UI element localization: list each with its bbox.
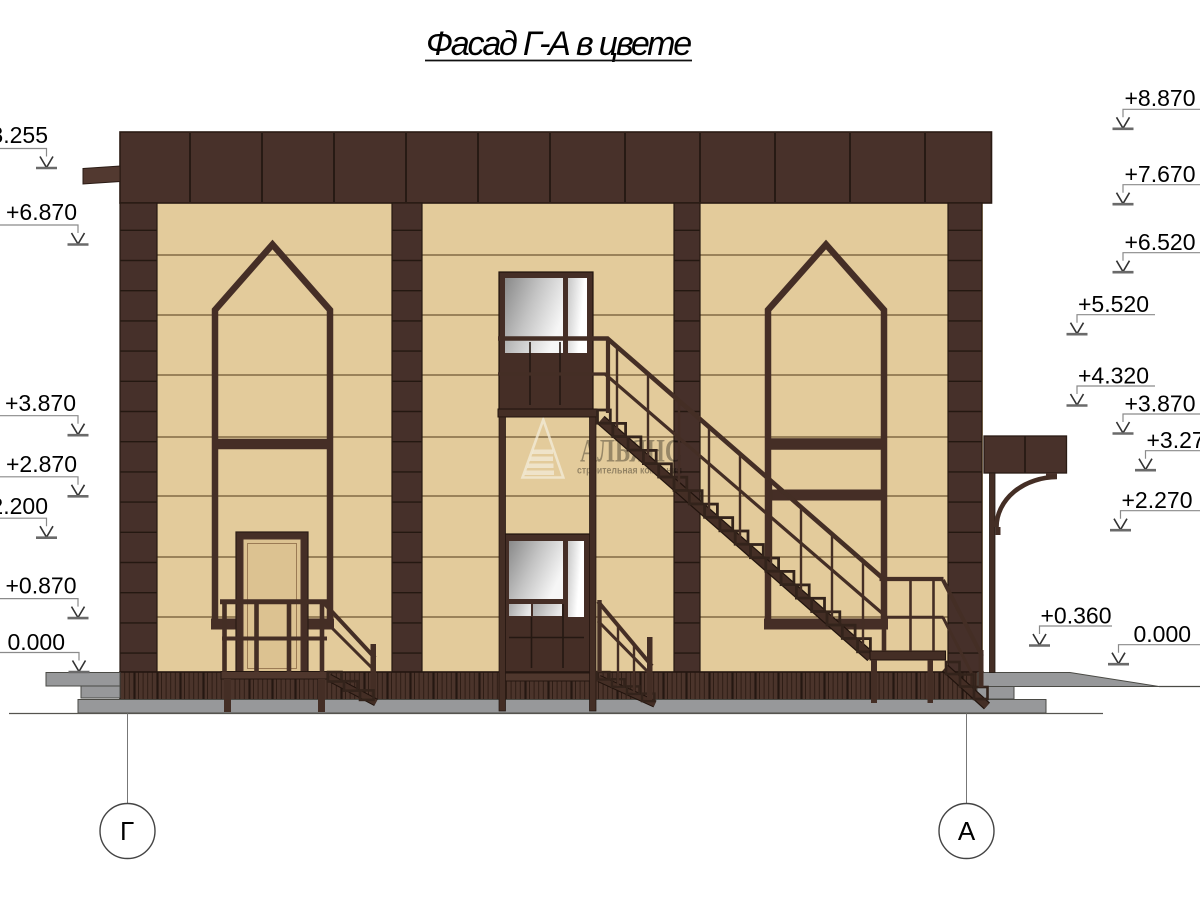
svg-text:А: А bbox=[958, 816, 976, 846]
svg-text:+2.270: +2.270 bbox=[1122, 487, 1193, 513]
svg-text:0.000: 0.000 bbox=[7, 629, 65, 655]
svg-text:+2.200: +2.200 bbox=[0, 493, 48, 519]
svg-text:+8.870: +8.870 bbox=[1125, 85, 1196, 111]
svg-text:+5.520: +5.520 bbox=[1078, 291, 1149, 317]
svg-text:+3.270: +3.270 bbox=[1147, 427, 1200, 453]
svg-text:+7.670: +7.670 bbox=[1125, 161, 1196, 187]
svg-text:Г: Г bbox=[120, 816, 134, 846]
svg-text:+8.255: +8.255 bbox=[0, 122, 48, 148]
svg-text:+6.870: +6.870 bbox=[6, 199, 77, 225]
svg-text:0.000: 0.000 bbox=[1134, 621, 1192, 647]
svg-text:+2.870: +2.870 bbox=[6, 451, 77, 477]
svg-text:+0.870: +0.870 bbox=[6, 573, 77, 599]
svg-text:+3.870: +3.870 bbox=[1125, 390, 1196, 416]
svg-text:+4.320: +4.320 bbox=[1078, 362, 1149, 388]
svg-text:+6.520: +6.520 bbox=[1125, 229, 1196, 255]
svg-text:Фасад Г-А в цвете: Фасад Г-А в цвете bbox=[426, 25, 691, 63]
svg-text:+3.870: +3.870 bbox=[5, 390, 76, 416]
svg-text:+0.360: +0.360 bbox=[1041, 602, 1112, 628]
